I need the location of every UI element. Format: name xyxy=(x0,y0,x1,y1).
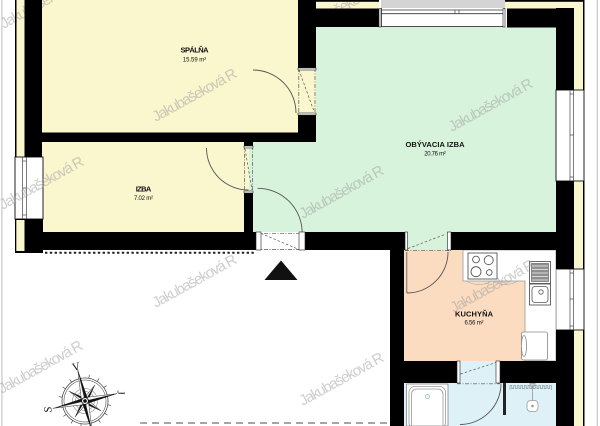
svg-text:6.56 m²: 6.56 m² xyxy=(465,321,484,327)
svg-text:15.59 m²: 15.59 m² xyxy=(183,58,207,64)
svg-text:J: J xyxy=(115,391,127,396)
svg-text:S: S xyxy=(42,406,54,413)
svg-text:IZBA: IZBA xyxy=(136,185,152,194)
svg-text:SPÁLŇA: SPÁLŇA xyxy=(181,46,210,55)
svg-text:OBÝVACIA IZBA: OBÝVACIA IZBA xyxy=(406,140,466,149)
svg-text:7.02 m²: 7.02 m² xyxy=(134,196,153,202)
svg-text:KUCHYŇA: KUCHYŇA xyxy=(455,310,494,319)
svg-text:20.76 m²: 20.76 m² xyxy=(424,152,446,158)
